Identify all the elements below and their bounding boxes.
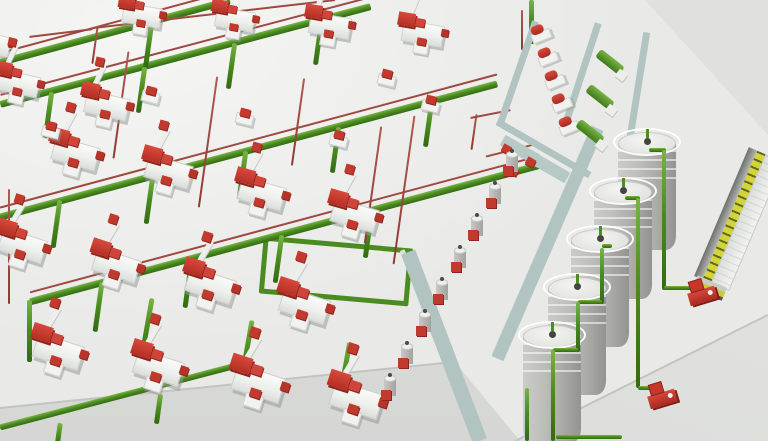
machine-end-unit bbox=[374, 213, 384, 223]
machine-clamp-small bbox=[11, 67, 22, 77]
dosing-red-box bbox=[451, 262, 461, 272]
machine-end-unit bbox=[95, 151, 105, 161]
silo-inlet-valve bbox=[549, 331, 556, 338]
machine-robot-unit bbox=[132, 23, 148, 36]
dosing-station bbox=[451, 244, 469, 272]
auxiliary-unit bbox=[234, 107, 257, 127]
branch-pipe-green bbox=[54, 423, 63, 441]
machine-robot-unit bbox=[412, 41, 429, 55]
silo-pipe-green bbox=[662, 150, 666, 290]
dosing-station bbox=[416, 308, 434, 336]
machine-clamp-small bbox=[228, 5, 238, 14]
dosing-inlet bbox=[458, 245, 462, 249]
molding-machine bbox=[0, 54, 50, 111]
molding-machine bbox=[136, 137, 204, 202]
branch-pipe-red bbox=[198, 76, 219, 207]
dosing-red-box bbox=[503, 166, 513, 176]
dosing-red-box bbox=[433, 294, 443, 304]
silo-pipe-green bbox=[551, 350, 555, 441]
transfer-pump bbox=[644, 377, 682, 411]
machine-end-unit bbox=[188, 169, 198, 179]
machine-robot-unit bbox=[319, 33, 336, 47]
machine-end-unit bbox=[125, 102, 134, 111]
machine-robot-unit bbox=[225, 27, 241, 40]
branch-pipe-red bbox=[291, 78, 305, 165]
machine-clamp-red bbox=[117, 0, 135, 10]
conveyor-chute bbox=[595, 49, 625, 75]
molding-machine bbox=[24, 315, 97, 385]
dosing-station bbox=[433, 276, 451, 304]
silo-pipe-green bbox=[578, 300, 602, 304]
silo-inlet-valve bbox=[574, 283, 581, 290]
molding-machine bbox=[229, 159, 297, 224]
machine-end-unit bbox=[281, 191, 291, 201]
delivery-truck bbox=[694, 147, 768, 291]
dosing-station bbox=[503, 148, 521, 176]
dosing-inlet bbox=[405, 341, 409, 345]
silo-inlet-pipe bbox=[622, 178, 625, 187]
silo-pipe-green bbox=[525, 388, 529, 441]
dosing-inlet bbox=[440, 277, 444, 281]
machine-end-unit bbox=[252, 15, 260, 23]
branch-pipe-green bbox=[92, 282, 104, 332]
molding-machine bbox=[302, 0, 360, 51]
machine-end-unit bbox=[441, 29, 449, 37]
dosing-red-box bbox=[398, 358, 408, 368]
auxiliary-unit bbox=[328, 129, 351, 149]
molding-machine bbox=[222, 345, 298, 418]
machine-clamp-red bbox=[397, 11, 416, 27]
auxiliary-unit bbox=[140, 85, 163, 105]
silo-pipe-green bbox=[576, 302, 580, 352]
dosing-red-box bbox=[416, 326, 426, 336]
silo-inlet-pipe bbox=[599, 226, 602, 235]
molding-machine bbox=[395, 5, 453, 60]
silo-inlet-pipe bbox=[576, 274, 579, 283]
plant-3d-viewport[interactable] bbox=[0, 0, 768, 441]
enclosure-machine bbox=[541, 66, 570, 91]
silo-pipe-green bbox=[600, 248, 604, 304]
silo-pipe-green bbox=[636, 198, 640, 388]
dosing-red-box bbox=[468, 230, 478, 240]
dosing-station bbox=[398, 340, 416, 368]
dosing-inlet bbox=[510, 149, 514, 153]
machine-robot-unit bbox=[7, 91, 25, 106]
dosing-inlet bbox=[388, 373, 392, 377]
molding-machine bbox=[322, 181, 390, 246]
machine-end-unit bbox=[159, 11, 167, 19]
conveyor-chute bbox=[585, 84, 615, 110]
dosing-inlet bbox=[493, 181, 497, 185]
machine-robot-unit bbox=[94, 113, 113, 129]
scene-objects bbox=[0, 0, 768, 441]
dosing-station bbox=[486, 180, 504, 208]
dosing-inlet bbox=[475, 213, 479, 217]
machine-clamp-small bbox=[415, 18, 425, 28]
machine-clamp-small bbox=[322, 10, 332, 20]
silo-pipe-green bbox=[553, 348, 578, 352]
silo-inlet-valve bbox=[597, 235, 604, 242]
branch-pipe-red bbox=[470, 114, 477, 150]
silo-pipe-green bbox=[556, 435, 622, 439]
dosing-station bbox=[468, 212, 486, 240]
dosing-red-box bbox=[486, 198, 496, 208]
molding-machine bbox=[116, 0, 171, 40]
branch-pipe-green bbox=[153, 394, 162, 424]
silo-inlet-valve bbox=[620, 187, 627, 194]
molding-machine bbox=[176, 249, 249, 319]
machine-clamp-red bbox=[80, 81, 101, 99]
machine-clamp-small bbox=[135, 1, 145, 10]
molding-machine bbox=[77, 74, 140, 134]
silo-inlet-valve bbox=[644, 138, 651, 145]
silo-pipe-green bbox=[602, 244, 612, 248]
dosing-inlet bbox=[423, 309, 427, 313]
machine-clamp-red bbox=[210, 0, 228, 14]
branch-pipe-red bbox=[521, 10, 523, 50]
main-pipe-green bbox=[0, 362, 241, 431]
enclosure-machine bbox=[534, 43, 563, 68]
dosing-red-box bbox=[381, 390, 391, 400]
transfer-pump bbox=[684, 274, 722, 308]
silo-inlet-pipe bbox=[646, 129, 649, 138]
silo-inlet-pipe bbox=[551, 322, 554, 331]
auxiliary-unit bbox=[420, 94, 443, 114]
machine-clamp-small bbox=[99, 89, 110, 99]
branch-pipe-green bbox=[225, 43, 236, 89]
machine-end-unit bbox=[36, 80, 45, 89]
auxiliary-unit bbox=[376, 68, 399, 88]
dosing-station bbox=[381, 372, 399, 400]
machine-end-unit bbox=[348, 21, 356, 29]
machine-clamp-red bbox=[304, 3, 323, 19]
